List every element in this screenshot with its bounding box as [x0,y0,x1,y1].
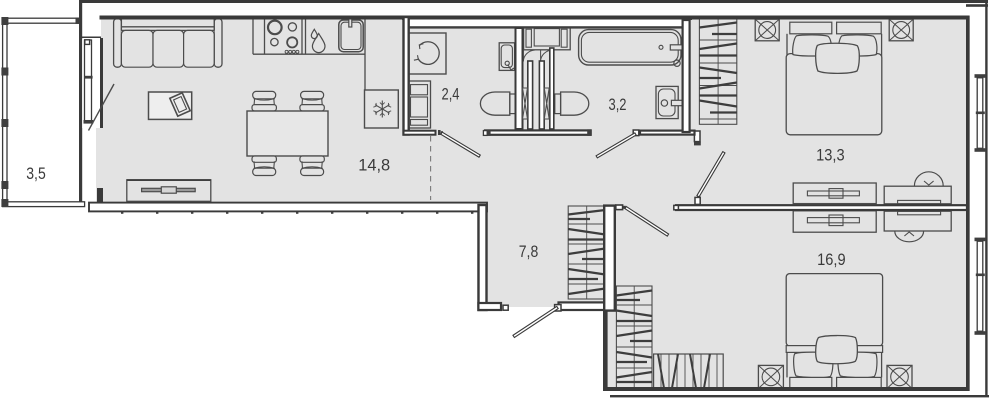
svg-text:16,9: 16,9 [817,251,846,269]
svg-text:3,5: 3,5 [26,165,46,183]
svg-text:14,8: 14,8 [358,156,390,174]
svg-text:2,4: 2,4 [442,86,460,104]
svg-text:3,2: 3,2 [609,96,627,114]
svg-text:13,3: 13,3 [816,146,845,164]
svg-text:7,8: 7,8 [519,243,539,261]
